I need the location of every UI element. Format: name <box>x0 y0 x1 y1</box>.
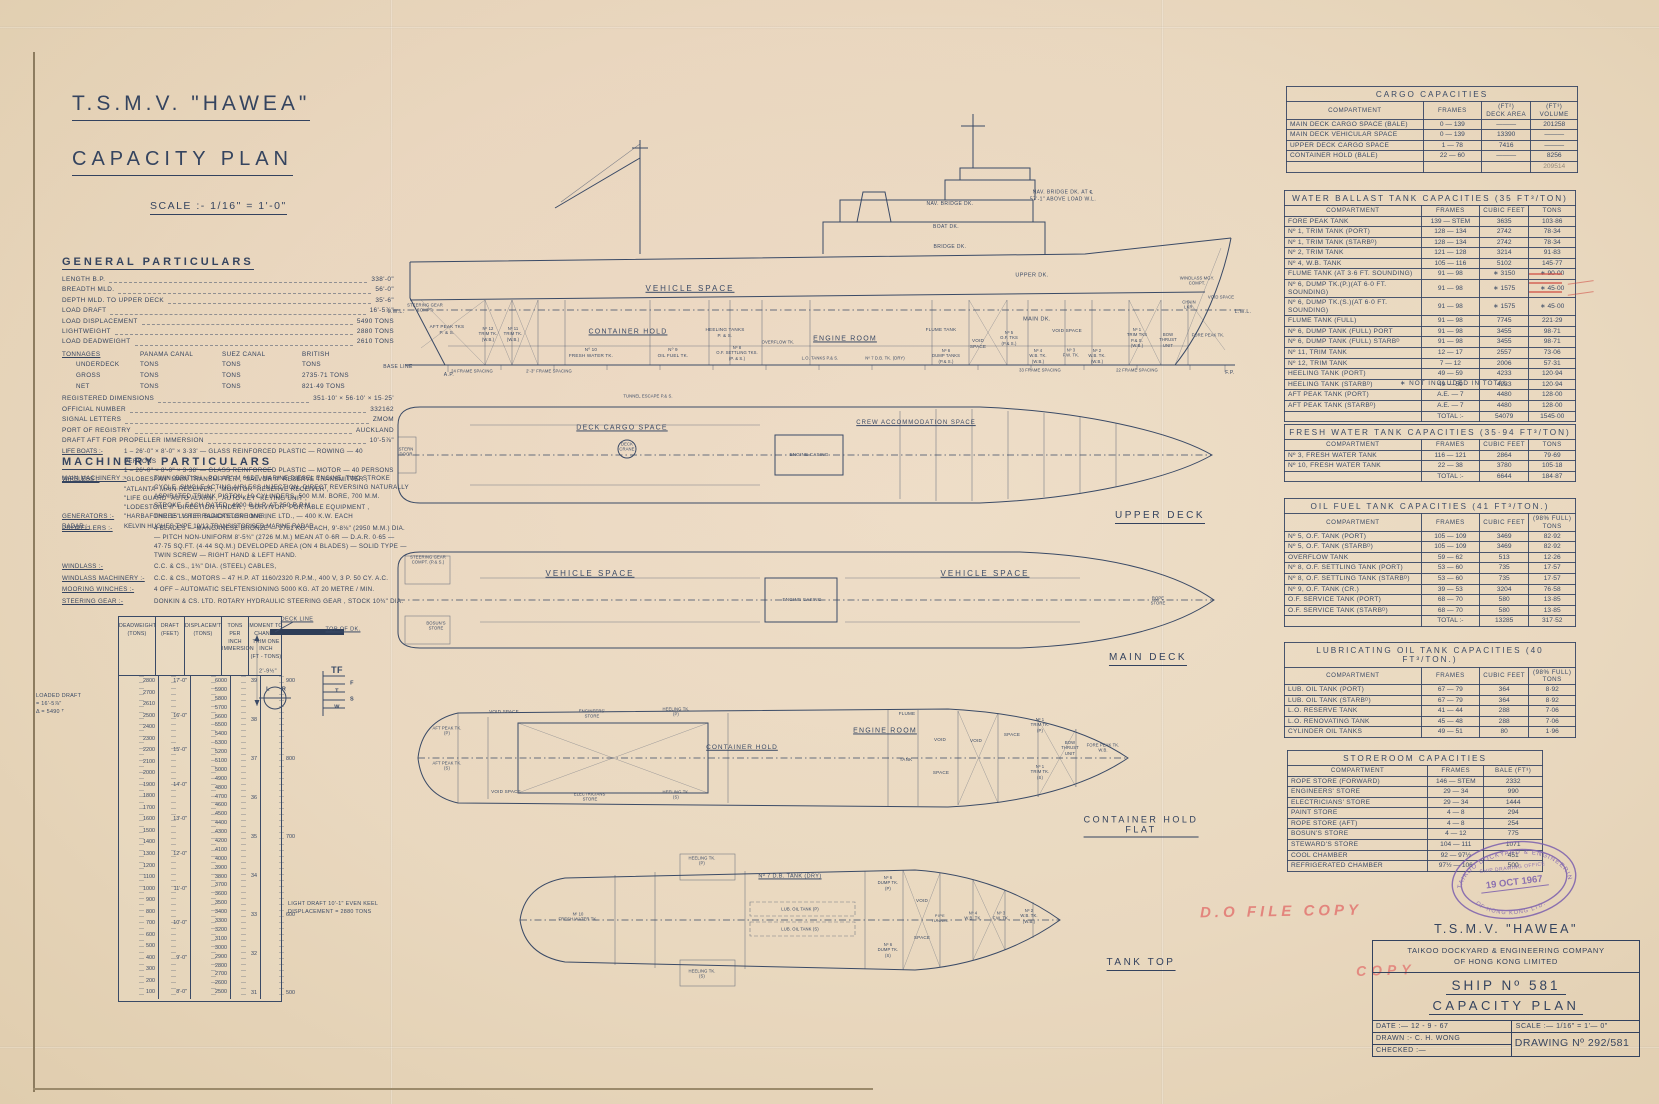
table-cell: ∗ 1575 <box>1479 298 1528 316</box>
upper-dk-label: UPPER DK. <box>1015 272 1048 279</box>
engine-room-label: ENGINE ROOM <box>813 334 877 343</box>
table-cell: 67 — 79 <box>1421 685 1479 696</box>
nav-bridge-dk-label: NAV. BRIDGE DK. <box>926 201 973 208</box>
title-block-plan-name: CAPACITY PLAN <box>1429 998 1584 1015</box>
column-header: TONS <box>1529 440 1576 450</box>
tonnages-value: TONS <box>222 360 302 371</box>
list-item: 4700 <box>215 795 227 800</box>
list-item: 800 <box>286 757 295 762</box>
container-hold-plan-label: CONTAINER HOLD <box>706 744 778 752</box>
table-cell: 2742 <box>1479 227 1528 238</box>
loadline-letter-t: T <box>335 688 339 695</box>
sheet-edge <box>33 1088 873 1090</box>
table-cell: 29 — 34 <box>1428 787 1484 798</box>
table-row: TOTAL :-13285317·52 <box>1285 616 1576 627</box>
tunnel-escape-label: TUNNEL ESCAPE P.& S. <box>623 393 672 398</box>
list-item: 700 <box>146 921 155 926</box>
no4-wb-label: Nº 4 W.B. TK. (W.B.) <box>1029 348 1046 364</box>
title-block-checked: CHECKED :— <box>1373 1045 1511 1056</box>
column-header: COMPARTMENT <box>1287 102 1424 119</box>
table-cell: Nº 8, O.F. SETTLING TANK (STARBᴰ) <box>1285 573 1422 584</box>
column-header: (98% FULL) TONS <box>1529 514 1576 531</box>
particular-row: LOAD DEADWEIGHT2610 TONS <box>62 337 394 347</box>
table-row: CONTAINER HOLD (BALE)22 — 60———8256 <box>1287 151 1578 162</box>
boat-dk-label: BOAT DK. <box>933 224 959 231</box>
table-cell: TOTAL :- <box>1421 411 1479 422</box>
list-item: 36 <box>251 796 257 801</box>
table-cell: CYLINDER OIL TANKS <box>1285 727 1422 738</box>
table-row: Nº 11, TRIM TANK12 — 17255773·06 <box>1285 348 1576 359</box>
dws-header: DEADWEIGHT (TONS) <box>119 617 156 675</box>
heeling-tanks-label: HEELING TANKS P. & S. <box>706 327 745 339</box>
particular-row: LOAD DISPLACEMENT5490 TONS <box>62 317 394 327</box>
water-ballast-table: WATER BALLAST TANK CAPACITIES (35 FT³/TO… <box>1284 190 1576 422</box>
table-cell: Nº 4, W.B. TANK <box>1285 258 1422 269</box>
table-cell: 39 — 53 <box>1421 584 1479 595</box>
table-cell: 57·31 <box>1529 358 1576 369</box>
table-cell: FLUME TANK (AT 3·6 FT. SOUNDING) <box>1285 269 1422 280</box>
particular-row: LIGHTWEIGHT2880 TONS <box>62 327 394 337</box>
table-cell: L.O. RENOVATING TANK <box>1285 716 1422 727</box>
table-cell: 91 — 98 <box>1421 316 1479 327</box>
freeboard-dimension: 2'-9½" <box>259 668 277 675</box>
list-item: 1900 <box>143 783 155 788</box>
table-cell: 82·92 <box>1529 531 1576 542</box>
frame-spacing-note-1: 24 FRAME SPACING <box>451 368 493 373</box>
list-item: 1200 <box>143 864 155 869</box>
table-cell: 294 <box>1484 808 1543 819</box>
table-cell: 105 — 109 <box>1421 542 1479 553</box>
engineers-store-label: ENGINEERS' STORE <box>579 709 605 720</box>
no2-wb-tt-label: Nº 2 W.B. TK. (W.B.) <box>1020 908 1037 924</box>
table-cell: ROPE STORE (FORWARD) <box>1288 776 1428 787</box>
crew-accommodation-label: CREW ACCOMMODATION SPACE <box>856 420 975 428</box>
table-cell: LUB. OIL TANK (STARBᴰ) <box>1285 695 1422 706</box>
title-block-company: TAIKOO DOCKYARD & ENGINEERING COMPANY OF… <box>1373 941 1639 973</box>
table-row: Nº 6, DUMP TK.(S.)(AT 6·0 FT. SOUNDING)9… <box>1285 298 1576 316</box>
table-row: ENGINEERS' STORE29 — 34990 <box>1288 787 1543 798</box>
list-item: 4900 <box>215 777 227 782</box>
list-item: 4100 <box>215 848 227 853</box>
bow-thrust-label: BOW THRUST UNIT <box>1159 332 1177 348</box>
bow-thrust-plan-label: BOW THRUST UNIT <box>1061 740 1079 756</box>
aft-peak-s-label: AFT PEAK TK. (S) <box>433 761 462 772</box>
displacement-column: 6000590058005700560055005400530052005100… <box>191 676 231 999</box>
table-cell: ——— <box>1481 119 1530 130</box>
loadline-letter-l: L <box>266 686 270 693</box>
table-cell: 17·57 <box>1529 573 1576 584</box>
table-title: LUBRICATING OIL TANK CAPACITIES (40 FT³/… <box>1285 643 1576 668</box>
list-item: 2600 <box>215 981 227 986</box>
table-title: CARGO CAPACITIES <box>1287 87 1578 102</box>
table-cell: BOSUN'S STORE <box>1288 829 1428 840</box>
table-cell: 8·92 <box>1529 695 1576 706</box>
fp-label: F.P. <box>1225 370 1235 377</box>
loadline-letter-w: W <box>334 704 340 711</box>
table-cell: ——— <box>1531 130 1578 141</box>
capacity-table: OIL FUEL TANK CAPACITIES (41 FT³/TON.)CO… <box>1284 498 1576 627</box>
table-cell: 13285 <box>1479 616 1528 627</box>
table-cell: 317·52 <box>1529 616 1576 627</box>
no8-settling-label: Nº 8 O.F. SETTLING TKS. (P. & S.) <box>716 345 758 361</box>
heeling-s-label-chf: HEELING TK. (S) <box>662 790 689 801</box>
tonnages: TONNAGES PANAMA CANAL SUEZ CANAL BRITISH… <box>62 350 394 393</box>
column-header: CUBIC FEET <box>1479 667 1528 684</box>
list-item: 400 <box>146 956 155 961</box>
table-row: Nº 9, O.F. TANK (CR.)39 — 53320476·58 <box>1285 584 1576 595</box>
column-header: BALE (FT³) <box>1484 766 1543 776</box>
void-space-bow-label: VOID SPACE <box>1208 294 1234 299</box>
table-row: LUB. OIL TANK (STARBᴰ)67 — 793648·92 <box>1285 695 1576 706</box>
table-row: Nº 6, DUMP TANK (FULL) STARBᴰ91 — 983455… <box>1285 337 1576 348</box>
table-cell: L.O. RESERVE TANK <box>1285 706 1422 717</box>
list-item: 2700 <box>143 691 155 696</box>
table-cell: 4 — 8 <box>1428 808 1484 819</box>
drawing-office-stamp: TAIKOO DOCKYARD & ENGINEERING CO. SHIP D… <box>1441 828 1587 932</box>
bosuns-store-label: BOSUN'S STORE <box>426 621 445 632</box>
list-item: 5400 <box>215 732 227 737</box>
table-cell: 0 — 139 <box>1423 119 1481 130</box>
list-item: 15'-0" <box>173 748 187 753</box>
main-dk-label: MAIN DK. <box>1023 316 1051 323</box>
table-cell: 103·86 <box>1529 216 1576 227</box>
table-cell: A.E. — 7 <box>1421 390 1479 401</box>
list-item: 3700 <box>215 883 227 888</box>
tonnages-row-label: NET <box>62 382 140 393</box>
frame-spacing-note-3: 33 FRAME SPACING <box>1019 367 1061 372</box>
container-hold-flat-caption: CONTAINER HOLD FLAT <box>1084 815 1199 838</box>
general-particulars-list-2: REGISTERED DIMENSIONS351·10' × 56·10' × … <box>62 394 394 446</box>
list-item: 4400 <box>215 821 227 826</box>
loadline-letter-r: R <box>282 686 286 693</box>
sheet-title-scale: SCALE :- 1/16" = 1'-0" <box>150 200 287 215</box>
electricians-store-label: ELECTRICIANS' STORE <box>574 792 607 803</box>
do-file-copy-annotation: D.O FILE COPY <box>1200 902 1362 922</box>
machinery-row: GENERATORS :-THREE LISTER BLACKSTONE MAR… <box>62 513 410 522</box>
tonnages-row-label: GROSS <box>62 371 140 382</box>
list-item: 1400 <box>143 840 155 845</box>
tonnages-value: 821·49 TONS <box>302 382 392 393</box>
light-draft-note: LIGHT DRAFT 10'-1" EVEN KEEL DISPLACEMEN… <box>288 900 448 916</box>
table-cell: 13·85 <box>1529 595 1576 606</box>
table-cell <box>1287 161 1424 172</box>
tonnages-col: SUEZ CANAL <box>222 350 302 361</box>
table-cell: Nº 6, DUMP TK.(S.)(AT 6·0 FT. SOUNDING) <box>1285 298 1422 316</box>
loaded-draft-note: LOADED DRAFT = 16'-5⅞" Δ = 5490 ᵀ <box>36 692 110 716</box>
table-cell: 4480 <box>1479 400 1528 411</box>
particular-row: SIGNAL LETTERSZMOM <box>62 415 394 425</box>
tonnages-value: TONS <box>302 360 392 371</box>
tonnages-value: 2735·71 TONS <box>302 371 392 382</box>
table-cell: 78·34 <box>1529 237 1576 248</box>
container-hold-label: CONTAINER HOLD <box>589 327 668 336</box>
list-item: 3400 <box>215 910 227 915</box>
table-cell: 7 — 12 <box>1421 358 1479 369</box>
table-cell <box>1285 616 1422 627</box>
space-right-label: SPACE <box>1004 732 1020 738</box>
list-item: 6000 <box>215 679 227 684</box>
table-cell: 29 — 34 <box>1428 797 1484 808</box>
steering-gear-compt-label: STEERING GEAR COMPT. (P.& S.) <box>410 555 446 566</box>
table-cell: O.F. SERVICE TANK (PORT) <box>1285 595 1422 606</box>
table-cell: 120·94 <box>1529 369 1576 380</box>
table-row: CYLINDER OIL TANKS49 — 51801·96 <box>1285 727 1576 738</box>
no2-wb-label: Nº 2 W.B. TK. (W.B.) <box>1088 348 1105 364</box>
table-row: MAIN DECK CARGO SPACE (BALE)0 — 139———20… <box>1287 119 1578 130</box>
ballast-note: ∗ NOT INCLUDED IN TOTAL <box>1400 379 1508 387</box>
container-hold-flat-plan <box>388 683 1172 833</box>
table-title: WATER BALLAST TANK CAPACITIES (35 FT³/TO… <box>1285 191 1576 206</box>
table-cell: ——— <box>1481 151 1530 162</box>
deck-cargo-space-label: DECK CARGO SPACE <box>576 423 667 432</box>
column-header: CUBIC FEET <box>1479 206 1528 216</box>
list-item: 1000 <box>143 887 155 892</box>
machinery-row: WINDLASS MACHINERY :-C.C. & CS., MOTORS … <box>62 575 410 584</box>
list-item: 5700 <box>215 706 227 711</box>
red-pencil-scribble <box>1566 281 1593 296</box>
list-item: 5200 <box>215 750 227 755</box>
lo-tanks-label: L.O. TANKS P.& S. <box>802 355 839 360</box>
table-row: L.O. RESERVE TANK41 — 442887·06 <box>1285 706 1576 717</box>
windlass-compt-label: WINDLASS MGY. COMPT. <box>1180 276 1215 287</box>
list-item: 3000 <box>215 946 227 951</box>
title-block: T.S.M.V. "HAWEA" TAIKOO DOCKYARD & ENGIN… <box>1372 922 1640 1057</box>
table-cell: 105·18 <box>1529 461 1576 472</box>
machinery-row: MAIN MACHINERY :-TWIN "BRITISH - POLAR" … <box>62 475 410 511</box>
table-cell: 59 — 62 <box>1421 552 1479 563</box>
table-row: PAINT STORE4 — 8294 <box>1288 808 1543 819</box>
column-header: TONS <box>1529 206 1576 216</box>
list-item: 33 <box>251 913 257 918</box>
table-cell: 7·06 <box>1529 716 1576 727</box>
list-item: 5000 <box>215 768 227 773</box>
machinery-row: WINDLASS :-C.C. & CS., 1¾" DIA. (STEEL) … <box>62 563 410 572</box>
table-cell: AFT PEAK TANK (STARBᴰ) <box>1285 400 1422 411</box>
tonnages-value: TONS <box>222 371 302 382</box>
table-cell: 0 — 139 <box>1423 130 1481 141</box>
table-row: ROPE STORE (FORWARD)146 — STEM2332 <box>1288 776 1543 787</box>
table-row: L.O. RENOVATING TANK45 — 482887·06 <box>1285 716 1576 727</box>
table-header-row: COMPARTMENTFRAMESCUBIC FEETTONS <box>1285 206 1576 216</box>
flume-label: FLUME <box>899 711 916 717</box>
table-cell <box>1481 161 1530 172</box>
table-cell: TOTAL :- <box>1421 616 1479 627</box>
table-cell: 2006 <box>1479 358 1528 369</box>
table-row: O.F. SERVICE TANK (STARBᴰ)68 — 7058013·8… <box>1285 605 1576 616</box>
no10-fresh-water-label: Nº 10 FRESH WATER TK. <box>569 347 613 359</box>
table-row: TOTAL :-540791545·00 <box>1285 411 1576 422</box>
table-header-row: COMPARTMENTFRAMESCUBIC FEET(98% FULL) TO… <box>1285 667 1576 684</box>
table-cell: 121 — 128 <box>1421 248 1479 259</box>
table-cell: 80 <box>1479 727 1528 738</box>
rope-store-label: ROPE STORE <box>1151 596 1166 607</box>
list-item: 12'-0" <box>173 852 187 857</box>
list-item: 4800 <box>215 786 227 791</box>
table-row: Nº 8, O.F. SETTLING TANK (PORT)53 — 6073… <box>1285 563 1576 574</box>
list-item: 34 <box>251 874 257 879</box>
table-cell: 116 — 121 <box>1421 450 1479 461</box>
table-cell: Nº 11, TRIM TANK <box>1285 348 1422 359</box>
table-row: Nº 5, O.F. TANK (STARBᴰ)105 — 109346982·… <box>1285 542 1576 553</box>
particular-row: LENGTH B.P.338'-0" <box>62 275 394 285</box>
table-cell: 13·85 <box>1529 605 1576 616</box>
table-cell: ——— <box>1531 140 1578 151</box>
table-cell: 78·34 <box>1529 227 1576 238</box>
dws-header: DRAFT (FEET) <box>156 617 185 675</box>
cargo-capacities-table: CARGO CAPACITIESCOMPARTMENTFRAMES(FT²) D… <box>1286 86 1578 173</box>
column-header: CUBIC FEET <box>1479 514 1528 531</box>
table-cell: 41 — 44 <box>1421 706 1479 717</box>
list-item: 3800 <box>215 875 227 880</box>
lwl-right-label: L.W.L. <box>1235 309 1252 316</box>
table-cell: 254 <box>1484 818 1543 829</box>
table-cell: 91 — 98 <box>1421 269 1479 280</box>
no11-trim-label: Nº 11 TRIM TK. (W.B.) <box>504 326 523 342</box>
table-cell: Nº 1, TRIM TANK (PORT) <box>1285 227 1422 238</box>
machinery-row: PROPELLERS :-4 BLADES — MANGANESE BRONZE… <box>62 525 410 561</box>
particular-row: REGISTERED DIMENSIONS351·10' × 56·10' × … <box>62 394 394 404</box>
particular-row: DEPTH MLD. TO UPPER DECK35'-6" <box>62 296 394 306</box>
table-cell: Nº 3, FRESH WATER TANK <box>1285 450 1422 461</box>
column-header: (FT³) VOLUME <box>1531 102 1578 119</box>
table-cell: FORE PEAK TANK <box>1285 216 1422 227</box>
table-cell: TOTAL :- <box>1421 471 1479 482</box>
tonnages-row-label: UNDERDECK <box>62 360 140 371</box>
table-cell: 1545·00 <box>1529 411 1576 422</box>
table-cell: 54079 <box>1479 411 1528 422</box>
table-cell: 364 <box>1479 695 1528 706</box>
table-row: Nº 1, TRIM TANK (STARBᴰ)128 — 134274278·… <box>1285 237 1576 248</box>
title-block-scale: SCALE :— 1/16" = 1'— 0" <box>1512 1021 1639 1033</box>
table-cell: 7416 <box>1481 140 1530 151</box>
table-cell: 139 — STEM <box>1421 216 1479 227</box>
table-cell: 221·29 <box>1529 316 1576 327</box>
table-cell: REFRIGERATED CHAMBER <box>1288 861 1428 872</box>
table-cell: COOL CHAMBER <box>1288 850 1428 861</box>
table-cell: 91 — 98 <box>1421 337 1479 348</box>
table-cell: OVERFLOW TANK <box>1285 552 1422 563</box>
table-cell: MAIN DECK CARGO SPACE (BALE) <box>1287 119 1424 130</box>
column-header: FRAMES <box>1421 206 1479 216</box>
table-row: Nº 10, FRESH WATER TANK22 — 383780105·18 <box>1285 461 1576 472</box>
particular-row: BREADTH MLD.56'-0" <box>62 285 394 295</box>
table-cell: 2742 <box>1479 237 1528 248</box>
list-item: 4600 <box>215 803 227 808</box>
table-title: STOREROOM CAPACITIES <box>1288 751 1543 766</box>
table-cell: 580 <box>1479 595 1528 606</box>
table-cell: 91 — 98 <box>1421 326 1479 337</box>
no7-db-tank-label: Nº 7 D.B. TANK (DRY) <box>758 873 821 880</box>
list-item: 3100 <box>215 937 227 942</box>
table-cell: 82·92 <box>1529 542 1576 553</box>
table-header-row: COMPARTMENTFRAMESCUBIC FEETTONS <box>1285 440 1576 450</box>
list-item: 500 <box>146 944 155 949</box>
table-cell: 68 — 70 <box>1421 595 1479 606</box>
list-item: 14'-0" <box>173 783 187 788</box>
void-space-top-label: VOID SPACE <box>489 709 519 715</box>
heeling-p-label-tt: HEELING TK. (P) <box>688 856 715 867</box>
capacity-table: LUBRICATING OIL TANK CAPACITIES (40 FT³/… <box>1284 642 1576 738</box>
table-cell: 3455 <box>1479 337 1528 348</box>
table-cell: STEWARD'S STORE <box>1288 840 1428 851</box>
table-header-row: COMPARTMENTFRAMES(FT²) DECK AREA(FT³) VO… <box>1287 102 1578 119</box>
column-header: (FT²) DECK AREA <box>1481 102 1530 119</box>
list-item: 35 <box>251 835 257 840</box>
table-cell: 7745 <box>1479 316 1528 327</box>
table-cell: Nº 10, FRESH WATER TANK <box>1285 461 1422 472</box>
heeling-s-label-tt: HEELING TK. (S) <box>688 969 715 980</box>
no6-dump-p-label: Nº 6 DUMP TK. (P) <box>878 875 899 891</box>
list-item: 300 <box>146 967 155 972</box>
list-item: 2900 <box>215 955 227 960</box>
bridge-dk-label: BRIDGE DK. <box>934 244 967 251</box>
table-cell: 22 — 38 <box>1421 461 1479 472</box>
table-cell: 3214 <box>1479 248 1528 259</box>
table-cell: HEELING TANK (PORT) <box>1285 369 1422 380</box>
table-cell: 73·06 <box>1529 348 1576 359</box>
column-header: CUBIC FEET <box>1479 440 1528 450</box>
table-row: Nº 4, W.B. TANK105 — 1165102145·77 <box>1285 258 1576 269</box>
particular-row: LOAD DRAFT16'-5⅞" <box>62 306 394 316</box>
void-right-label: VOID <box>970 738 982 744</box>
table-cell: ∗ 3150 <box>1479 269 1528 280</box>
engine-room-plan-label: ENGINE ROOM <box>853 726 917 735</box>
engine-casing-label-upper: ENGINE CASING <box>789 452 828 458</box>
table-cell: 45 — 48 <box>1421 716 1479 727</box>
list-item: 2300 <box>143 737 155 742</box>
title-block-drawn: DRAWN :- C. H. WONG <box>1373 1033 1511 1045</box>
table-cell: 735 <box>1479 573 1528 584</box>
table-cell: 1·96 <box>1529 727 1576 738</box>
table-cell: 22 — 60 <box>1423 151 1481 162</box>
table-cell: 105 — 109 <box>1421 531 1479 542</box>
table-cell: A.E. — 7 <box>1421 400 1479 411</box>
deck-crane-label: DECK CRANE <box>619 442 634 453</box>
list-item: 2500 <box>143 714 155 719</box>
sheet-title-ship: T.S.M.V. "HAWEA" <box>72 92 310 121</box>
no1-trim-p-label: Nº 1 TRIM TK. (P) <box>1031 717 1050 733</box>
lwl-left-label: L.W.L. <box>388 309 405 316</box>
table-cell: Nº 12, TRIM TANK <box>1285 358 1422 369</box>
machinery-particulars-heading: MACHINERY PARTICULARS <box>62 456 272 470</box>
list-item: 500 <box>286 991 295 996</box>
capacity-table: CARGO CAPACITIESCOMPARTMENTFRAMES(FT²) D… <box>1286 86 1578 173</box>
capacity-table: WATER BALLAST TANK CAPACITIES (35 FT³/TO… <box>1284 190 1576 422</box>
list-item: 2610 <box>143 702 155 707</box>
table-cell: FLUME TANK (FULL) <box>1285 316 1422 327</box>
column-header: (98% FULL) TONS <box>1529 667 1576 684</box>
list-item: 1700 <box>143 806 155 811</box>
deck-line-label: DECK LINE <box>281 616 314 623</box>
table-cell: 53 — 60 <box>1421 573 1479 584</box>
list-item: 2200 <box>143 748 155 753</box>
base-line-label: BASE LINE <box>383 364 412 371</box>
table-row: ELECTRICIANS' STORE29 — 341444 <box>1288 797 1543 808</box>
tonnages-value: TONS <box>140 382 222 393</box>
table-cell: Nº 5, O.F. TANK (PORT) <box>1285 531 1422 542</box>
list-item: 3600 <box>215 892 227 897</box>
table-cell <box>1423 161 1481 172</box>
title-block-drawing-no: DRAWING Nº 292/581 <box>1512 1033 1639 1053</box>
particular-row: DRAFT AFT FOR PROPELLER IMMERSION10'-5⅞" <box>62 436 394 446</box>
fold-crease <box>0 26 1659 29</box>
table-cell: Nº 6, DUMP TK.(P.)(AT 6·0 FT. SOUNDING) <box>1285 280 1422 298</box>
list-item: 4300 <box>215 830 227 835</box>
table-cell: 288 <box>1479 716 1528 727</box>
tonnages-value: TONS <box>140 371 222 382</box>
table-cell: 1 — 78 <box>1423 140 1481 151</box>
sheet-title-plan: CAPACITY PLAN <box>72 148 293 176</box>
